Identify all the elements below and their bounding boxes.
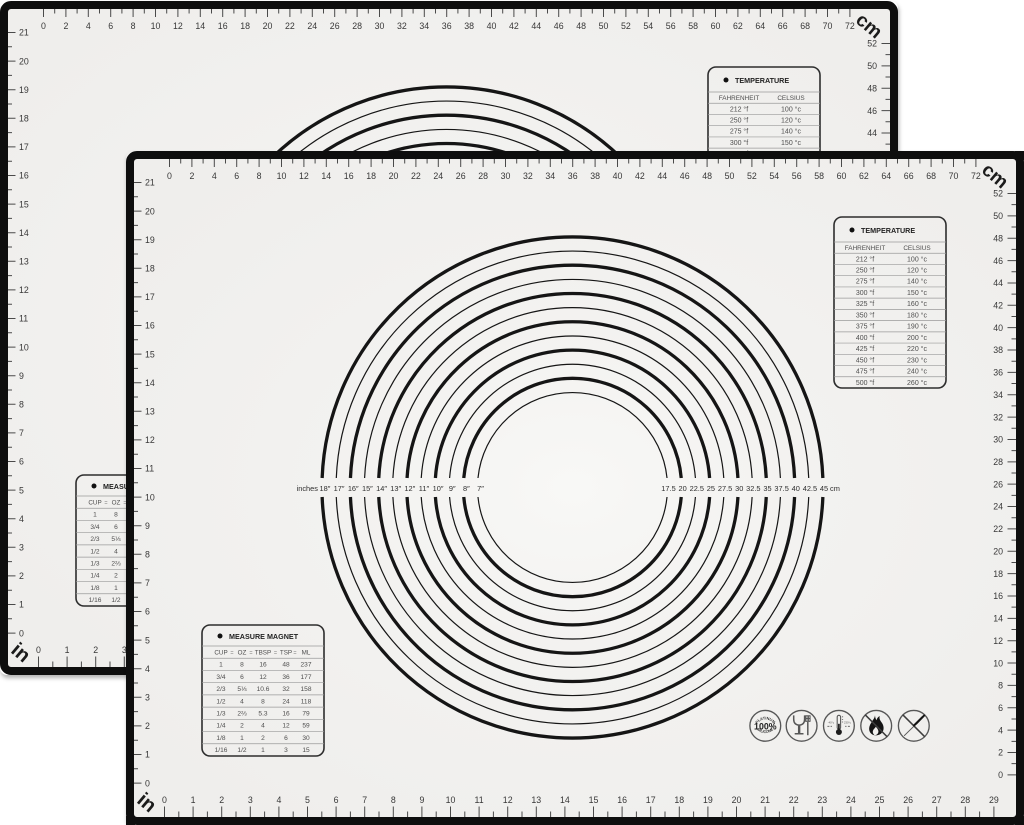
svg-text:0: 0 <box>998 770 1003 780</box>
svg-text:59: 59 <box>302 723 310 730</box>
svg-text:66: 66 <box>904 171 914 181</box>
svg-text:24: 24 <box>307 21 317 31</box>
svg-text:2: 2 <box>19 571 24 581</box>
svg-text:212 °f: 212 °f <box>856 255 874 263</box>
svg-text:11: 11 <box>145 464 154 474</box>
svg-text:24: 24 <box>282 698 290 705</box>
svg-text:70: 70 <box>949 171 959 181</box>
svg-text:40: 40 <box>487 21 497 31</box>
svg-text:3: 3 <box>145 693 150 703</box>
svg-text:11: 11 <box>19 314 28 324</box>
svg-text:17.5: 17.5 <box>661 484 675 493</box>
svg-text:16: 16 <box>993 591 1003 601</box>
svg-text:CUP: CUP <box>88 499 101 506</box>
svg-text:48: 48 <box>282 662 290 669</box>
svg-text:40: 40 <box>993 323 1003 333</box>
svg-text:35: 35 <box>763 484 771 493</box>
svg-text:10: 10 <box>151 21 161 31</box>
svg-text:FAHRENHEIT: FAHRENHEIT <box>845 245 886 252</box>
svg-text:300 °f: 300 °f <box>856 289 874 297</box>
svg-text:64: 64 <box>755 21 765 31</box>
svg-text:14″: 14″ <box>376 484 387 493</box>
svg-text:CELSIUS: CELSIUS <box>903 245 930 252</box>
svg-text:48: 48 <box>702 171 712 181</box>
svg-text:4: 4 <box>145 664 150 674</box>
svg-text:22: 22 <box>285 21 295 31</box>
svg-text:=: = <box>274 650 277 656</box>
svg-text:TEMPERATURE: TEMPERATURE <box>861 226 915 235</box>
svg-text:1: 1 <box>261 747 265 754</box>
svg-text:TEMPERATURE: TEMPERATURE <box>735 76 789 85</box>
svg-text:21: 21 <box>145 178 155 188</box>
svg-text:20: 20 <box>732 795 742 805</box>
svg-text:48: 48 <box>576 21 586 31</box>
svg-text:275 °f: 275 °f <box>730 128 748 136</box>
svg-text:2⅔: 2⅔ <box>111 561 121 568</box>
svg-text:45: 45 <box>820 484 828 493</box>
svg-text:22: 22 <box>789 795 799 805</box>
svg-text:18: 18 <box>993 569 1003 579</box>
svg-text:150 °c: 150 °c <box>907 289 927 297</box>
svg-text:8: 8 <box>257 171 262 181</box>
svg-text:38: 38 <box>590 171 600 181</box>
svg-text:5: 5 <box>305 795 310 805</box>
svg-text:10.6: 10.6 <box>257 686 270 693</box>
svg-text:13″: 13″ <box>390 484 401 493</box>
svg-text:4: 4 <box>240 698 244 705</box>
svg-text:20: 20 <box>145 206 155 216</box>
svg-text:16: 16 <box>145 321 155 331</box>
svg-text:16: 16 <box>218 21 228 31</box>
svg-text:60: 60 <box>837 171 847 181</box>
svg-text:34: 34 <box>993 390 1003 400</box>
svg-text:CELSIUS: CELSIUS <box>777 95 804 102</box>
svg-text:32: 32 <box>397 21 407 31</box>
svg-text:TBSP: TBSP <box>255 649 271 656</box>
svg-text:1/3: 1/3 <box>90 561 99 568</box>
svg-text:24: 24 <box>993 502 1003 512</box>
svg-text:5.3: 5.3 <box>258 711 267 718</box>
svg-text:19: 19 <box>145 235 155 245</box>
svg-text:16″: 16″ <box>348 484 359 493</box>
svg-text:9: 9 <box>419 795 424 805</box>
svg-text:4: 4 <box>276 795 281 805</box>
svg-text:32.5: 32.5 <box>746 484 760 493</box>
svg-text:275 °f: 275 °f <box>856 278 874 286</box>
svg-text:425 °f: 425 °f <box>856 345 874 353</box>
svg-text:3/4: 3/4 <box>90 524 99 531</box>
svg-text:6: 6 <box>284 735 288 742</box>
svg-text:2: 2 <box>998 748 1003 758</box>
svg-text:48: 48 <box>867 83 877 93</box>
svg-text:14: 14 <box>560 795 570 805</box>
svg-text:12: 12 <box>503 795 513 805</box>
svg-text:6: 6 <box>114 524 118 531</box>
svg-text:17″: 17″ <box>334 484 345 493</box>
svg-text:44: 44 <box>531 21 541 31</box>
svg-text:40: 40 <box>792 484 800 493</box>
svg-text:4: 4 <box>19 514 24 524</box>
svg-text:100 °c: 100 °c <box>781 105 801 113</box>
svg-text:3: 3 <box>19 543 24 553</box>
svg-text:10: 10 <box>993 658 1003 668</box>
svg-text:237: 237 <box>300 662 311 669</box>
svg-text:1: 1 <box>240 735 244 742</box>
svg-text:50: 50 <box>993 211 1003 221</box>
svg-text:18: 18 <box>674 795 684 805</box>
svg-text:500 °f: 500 °f <box>856 379 874 387</box>
svg-text:56: 56 <box>792 171 802 181</box>
svg-text:44: 44 <box>657 171 667 181</box>
svg-text:OZ: OZ <box>238 649 247 656</box>
svg-text:375 °f: 375 °f <box>856 323 874 331</box>
svg-text:0: 0 <box>36 645 41 655</box>
svg-text:68: 68 <box>926 171 936 181</box>
svg-text:56: 56 <box>666 21 676 31</box>
svg-text:46: 46 <box>993 256 1003 266</box>
svg-text:12: 12 <box>259 674 267 681</box>
svg-text:6: 6 <box>240 674 244 681</box>
svg-text:2: 2 <box>63 21 68 31</box>
svg-text:37.5: 37.5 <box>774 484 788 493</box>
svg-text:16: 16 <box>282 711 290 718</box>
svg-text:32: 32 <box>993 412 1003 422</box>
svg-text:62: 62 <box>859 171 869 181</box>
svg-text:38: 38 <box>993 345 1003 355</box>
svg-text:1: 1 <box>93 512 97 519</box>
svg-text:46: 46 <box>680 171 690 181</box>
svg-text:9: 9 <box>145 521 150 531</box>
svg-text:1/4: 1/4 <box>216 723 225 730</box>
svg-text:23: 23 <box>817 795 827 805</box>
svg-text:5⅓: 5⅓ <box>111 536 121 543</box>
svg-text:100%: 100% <box>754 722 777 732</box>
svg-text:14: 14 <box>321 171 331 181</box>
svg-text:350 °f: 350 °f <box>856 311 874 319</box>
svg-text:0: 0 <box>145 778 150 788</box>
svg-text:230°c: 230°c <box>844 720 852 724</box>
svg-text:180 °c: 180 °c <box>907 311 927 319</box>
svg-text:15: 15 <box>302 747 310 754</box>
svg-text:28: 28 <box>352 21 362 31</box>
svg-text:475 °f: 475 °f <box>856 368 874 376</box>
svg-text:220 °c: 220 °c <box>907 345 927 353</box>
svg-text:150 °c: 150 °c <box>781 139 801 147</box>
svg-text:6: 6 <box>108 21 113 31</box>
svg-text:450 °f: 450 °f <box>856 356 874 364</box>
svg-text:118: 118 <box>301 698 312 705</box>
svg-text:inches: inches <box>297 484 319 493</box>
svg-text:28: 28 <box>478 171 488 181</box>
svg-text:2/3: 2/3 <box>216 686 225 693</box>
svg-text:1: 1 <box>219 662 223 669</box>
svg-text:25: 25 <box>707 484 715 493</box>
svg-text:2: 2 <box>240 723 244 730</box>
svg-text:=: = <box>249 650 252 656</box>
svg-text:1/2: 1/2 <box>111 597 120 604</box>
svg-text:20: 20 <box>19 56 29 66</box>
svg-text:2: 2 <box>114 573 118 580</box>
svg-text:12″: 12″ <box>404 484 415 493</box>
svg-text:8: 8 <box>114 512 118 519</box>
svg-text:30: 30 <box>302 735 310 742</box>
svg-text:8: 8 <box>131 21 136 31</box>
svg-text:4: 4 <box>114 548 118 555</box>
svg-text:8: 8 <box>19 400 24 410</box>
svg-text:21: 21 <box>19 28 29 38</box>
svg-text:FAHRENHEIT: FAHRENHEIT <box>719 95 760 102</box>
svg-text:0: 0 <box>167 171 172 181</box>
svg-text:1/16: 1/16 <box>89 597 102 604</box>
svg-text:2/3: 2/3 <box>90 536 99 543</box>
svg-text:50: 50 <box>867 61 877 71</box>
svg-text:8″: 8″ <box>463 484 470 493</box>
svg-text:21: 21 <box>760 795 770 805</box>
svg-text:1: 1 <box>65 645 70 655</box>
svg-text:36: 36 <box>568 171 578 181</box>
svg-text:8: 8 <box>240 662 244 669</box>
svg-text:40: 40 <box>613 171 623 181</box>
svg-text:1/8: 1/8 <box>216 735 225 742</box>
svg-text:36: 36 <box>442 21 452 31</box>
svg-text:4: 4 <box>998 725 1003 735</box>
svg-text:26: 26 <box>456 171 466 181</box>
svg-text:79: 79 <box>302 711 310 718</box>
svg-text:46: 46 <box>554 21 564 31</box>
svg-text:325 °f: 325 °f <box>856 300 874 308</box>
svg-text:30: 30 <box>375 21 385 31</box>
svg-text:13: 13 <box>531 795 541 805</box>
svg-text:5: 5 <box>145 635 150 645</box>
svg-text:54: 54 <box>769 171 779 181</box>
svg-text:36: 36 <box>993 368 1003 378</box>
svg-text:9: 9 <box>19 371 24 381</box>
svg-text:20: 20 <box>993 546 1003 556</box>
svg-text:0: 0 <box>19 628 24 638</box>
svg-text:10: 10 <box>446 795 456 805</box>
svg-text:7″: 7″ <box>477 484 484 493</box>
svg-text:7: 7 <box>19 428 24 438</box>
svg-text:12: 12 <box>145 435 155 445</box>
svg-text:42: 42 <box>635 171 645 181</box>
svg-text:1/16: 1/16 <box>215 747 228 754</box>
svg-text:15: 15 <box>589 795 599 805</box>
svg-text:17: 17 <box>646 795 656 805</box>
svg-text:12: 12 <box>173 21 183 31</box>
svg-text:22.5: 22.5 <box>690 484 704 493</box>
svg-text:30: 30 <box>501 171 511 181</box>
svg-text:10: 10 <box>19 342 29 352</box>
svg-text:=: = <box>293 650 296 656</box>
svg-text:177: 177 <box>300 674 311 681</box>
svg-text:17: 17 <box>145 292 155 302</box>
svg-text:66: 66 <box>778 21 788 31</box>
svg-text:5: 5 <box>19 485 24 495</box>
svg-text:1: 1 <box>114 585 118 592</box>
svg-text:32: 32 <box>523 171 533 181</box>
svg-text:120 °c: 120 °c <box>781 116 801 124</box>
svg-text:13: 13 <box>19 257 29 267</box>
svg-text:38: 38 <box>464 21 474 31</box>
svg-text:TSP: TSP <box>280 649 292 656</box>
svg-text:26: 26 <box>330 21 340 31</box>
svg-text:26: 26 <box>993 479 1003 489</box>
svg-text:16: 16 <box>19 171 29 181</box>
svg-text:250 °f: 250 °f <box>856 266 874 274</box>
svg-text:4: 4 <box>86 21 91 31</box>
svg-text:18: 18 <box>366 171 376 181</box>
svg-text:16: 16 <box>259 662 267 669</box>
svg-text:250 °f: 250 °f <box>730 116 748 124</box>
svg-text:212 °f: 212 °f <box>730 105 748 113</box>
svg-text:190 °c: 190 °c <box>907 323 927 331</box>
svg-text:120 °c: 120 °c <box>907 266 927 274</box>
svg-text:4: 4 <box>212 171 217 181</box>
svg-text:20: 20 <box>389 171 399 181</box>
svg-text:1: 1 <box>191 795 196 805</box>
svg-text:52: 52 <box>747 171 757 181</box>
svg-text:46: 46 <box>867 106 877 116</box>
svg-text:28: 28 <box>960 795 970 805</box>
svg-text:1/2: 1/2 <box>237 747 246 754</box>
svg-text:10: 10 <box>277 171 287 181</box>
svg-text:10″: 10″ <box>433 484 444 493</box>
svg-text:OZ: OZ <box>112 499 121 506</box>
svg-text:6: 6 <box>145 607 150 617</box>
svg-text:14: 14 <box>145 378 155 388</box>
svg-text:22: 22 <box>411 171 421 181</box>
svg-text:14: 14 <box>993 614 1003 624</box>
svg-text:400 °f: 400 °f <box>856 334 874 342</box>
svg-text:-40°c: -40°c <box>828 720 835 724</box>
svg-text:200 °c: 200 °c <box>907 334 927 342</box>
svg-text:140 °c: 140 °c <box>907 278 927 286</box>
svg-text:20: 20 <box>263 21 273 31</box>
svg-text:30: 30 <box>735 484 743 493</box>
svg-text:1: 1 <box>19 600 24 610</box>
svg-text:36: 36 <box>282 674 290 681</box>
svg-text:15″: 15″ <box>362 484 373 493</box>
svg-text:100 °c: 100 °c <box>907 255 927 263</box>
svg-text:8: 8 <box>998 681 1003 691</box>
svg-text:1/3: 1/3 <box>216 711 225 718</box>
svg-text:6: 6 <box>234 171 239 181</box>
svg-text:=: = <box>230 650 233 656</box>
svg-text:2⅔: 2⅔ <box>237 711 247 718</box>
svg-text:3/4: 3/4 <box>216 674 225 681</box>
svg-text:27.5: 27.5 <box>718 484 732 493</box>
svg-text:7: 7 <box>362 795 367 805</box>
svg-text:44: 44 <box>993 278 1003 288</box>
svg-text:52: 52 <box>621 21 631 31</box>
svg-text:60: 60 <box>711 21 721 31</box>
svg-text:1/2: 1/2 <box>90 548 99 555</box>
svg-text:28: 28 <box>993 457 1003 467</box>
svg-text:140 °c: 140 °c <box>781 128 801 136</box>
svg-text:12: 12 <box>993 636 1003 646</box>
svg-text:14: 14 <box>19 228 29 238</box>
svg-text:48: 48 <box>993 233 1003 243</box>
svg-text:8: 8 <box>145 550 150 560</box>
svg-text:18: 18 <box>145 264 155 274</box>
svg-text:50: 50 <box>725 171 735 181</box>
svg-text:8: 8 <box>261 698 265 705</box>
svg-text:6: 6 <box>998 703 1003 713</box>
svg-text:2: 2 <box>219 795 224 805</box>
svg-text:7: 7 <box>145 578 150 588</box>
svg-text:50: 50 <box>599 21 609 31</box>
svg-text:16: 16 <box>344 171 354 181</box>
svg-text:52: 52 <box>867 39 877 49</box>
svg-text:230 °c: 230 °c <box>907 356 927 364</box>
svg-text:58: 58 <box>814 171 824 181</box>
svg-text:42: 42 <box>509 21 519 31</box>
svg-text:17: 17 <box>19 142 29 152</box>
svg-text:34: 34 <box>419 21 429 31</box>
svg-text:27: 27 <box>932 795 942 805</box>
svg-text:1/2: 1/2 <box>216 698 225 705</box>
svg-text:3: 3 <box>284 747 288 754</box>
svg-text:20: 20 <box>679 484 687 493</box>
svg-text:64: 64 <box>881 171 891 181</box>
svg-text:5⅓: 5⅓ <box>237 686 247 693</box>
svg-text:15: 15 <box>19 199 29 209</box>
svg-text:CUP: CUP <box>214 649 227 656</box>
svg-text:9″: 9″ <box>449 484 456 493</box>
svg-text:13: 13 <box>145 407 155 417</box>
svg-text:70: 70 <box>823 21 833 31</box>
svg-text:58: 58 <box>688 21 698 31</box>
svg-text:24: 24 <box>846 795 856 805</box>
svg-text:2: 2 <box>145 721 150 731</box>
svg-text:MEASURE MAGNET: MEASURE MAGNET <box>229 632 299 641</box>
svg-text:0: 0 <box>41 21 46 31</box>
svg-text:52: 52 <box>993 189 1003 199</box>
svg-text:6: 6 <box>334 795 339 805</box>
svg-text:12: 12 <box>299 171 309 181</box>
svg-text:14: 14 <box>195 21 205 31</box>
svg-text:22: 22 <box>993 524 1003 534</box>
svg-text:16: 16 <box>617 795 627 805</box>
svg-text:18: 18 <box>240 21 250 31</box>
svg-text:32: 32 <box>282 686 290 693</box>
svg-text:25: 25 <box>875 795 885 805</box>
svg-text:62: 62 <box>733 21 743 31</box>
svg-text:2: 2 <box>261 735 265 742</box>
svg-text:12: 12 <box>19 285 29 295</box>
svg-text:0: 0 <box>162 795 167 805</box>
svg-text:54: 54 <box>643 21 653 31</box>
svg-text:12: 12 <box>282 723 290 730</box>
svg-text:ML: ML <box>302 649 311 656</box>
svg-text:8: 8 <box>391 795 396 805</box>
svg-text:42.5: 42.5 <box>803 484 817 493</box>
svg-text:160 °c: 160 °c <box>907 300 927 308</box>
svg-text:29: 29 <box>989 795 999 805</box>
svg-text:4: 4 <box>261 723 265 730</box>
svg-text:68: 68 <box>800 21 810 31</box>
svg-text:42: 42 <box>993 301 1003 311</box>
svg-text:19: 19 <box>703 795 713 805</box>
svg-text:19: 19 <box>19 85 29 95</box>
svg-text:240 °c: 240 °c <box>907 368 927 376</box>
svg-text:11: 11 <box>475 795 484 805</box>
svg-text:30: 30 <box>993 435 1003 445</box>
svg-text:18: 18 <box>19 114 29 124</box>
svg-text:11″: 11″ <box>419 484 430 493</box>
svg-text:15: 15 <box>145 349 155 359</box>
svg-text:18″: 18″ <box>320 484 331 493</box>
